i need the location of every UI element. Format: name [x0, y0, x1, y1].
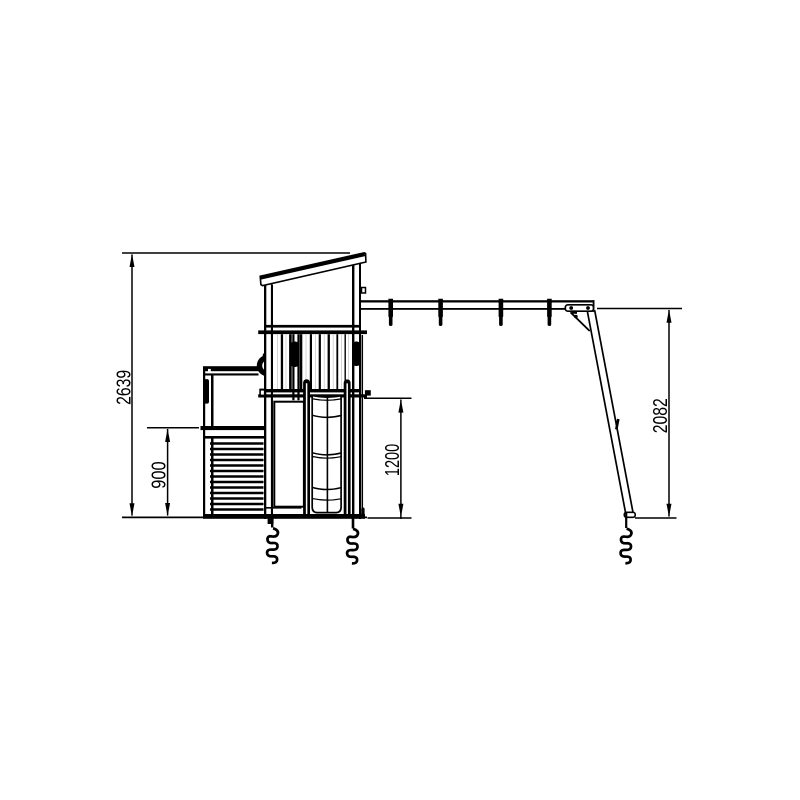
svg-text:900: 900	[148, 461, 170, 488]
svg-text:2082: 2082	[650, 398, 672, 433]
svg-text:1200: 1200	[382, 444, 404, 476]
svg-text:2639: 2639	[114, 370, 136, 405]
